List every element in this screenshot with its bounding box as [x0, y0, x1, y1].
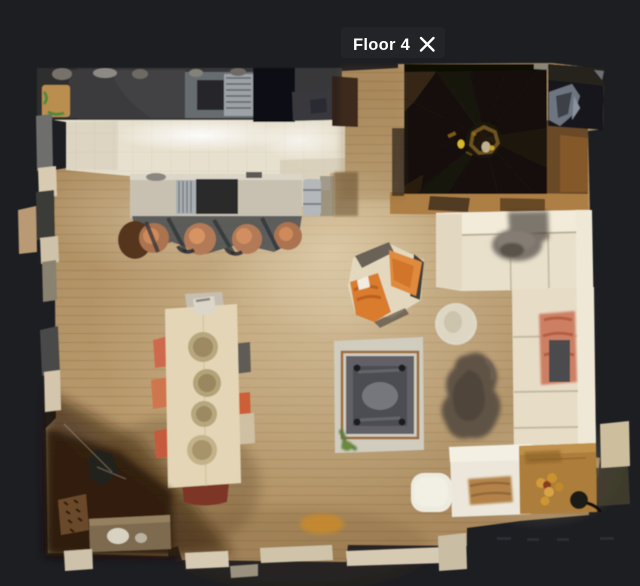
svg-text:Floor 4: Floor 4	[353, 36, 411, 54]
